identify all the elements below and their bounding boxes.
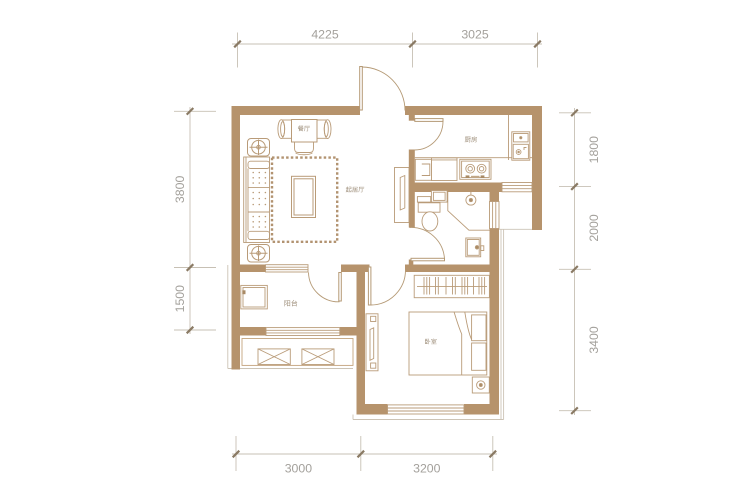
svg-text:3800: 3800 xyxy=(173,176,187,204)
svg-text:3025: 3025 xyxy=(461,28,489,42)
svg-text:3200: 3200 xyxy=(413,462,441,476)
svg-text:4225: 4225 xyxy=(311,28,339,42)
svg-text:2000: 2000 xyxy=(587,214,601,242)
svg-text:3400: 3400 xyxy=(587,326,601,354)
svg-text:1500: 1500 xyxy=(173,285,187,313)
svg-text:1800: 1800 xyxy=(587,136,601,164)
svg-text:3000: 3000 xyxy=(285,462,313,476)
